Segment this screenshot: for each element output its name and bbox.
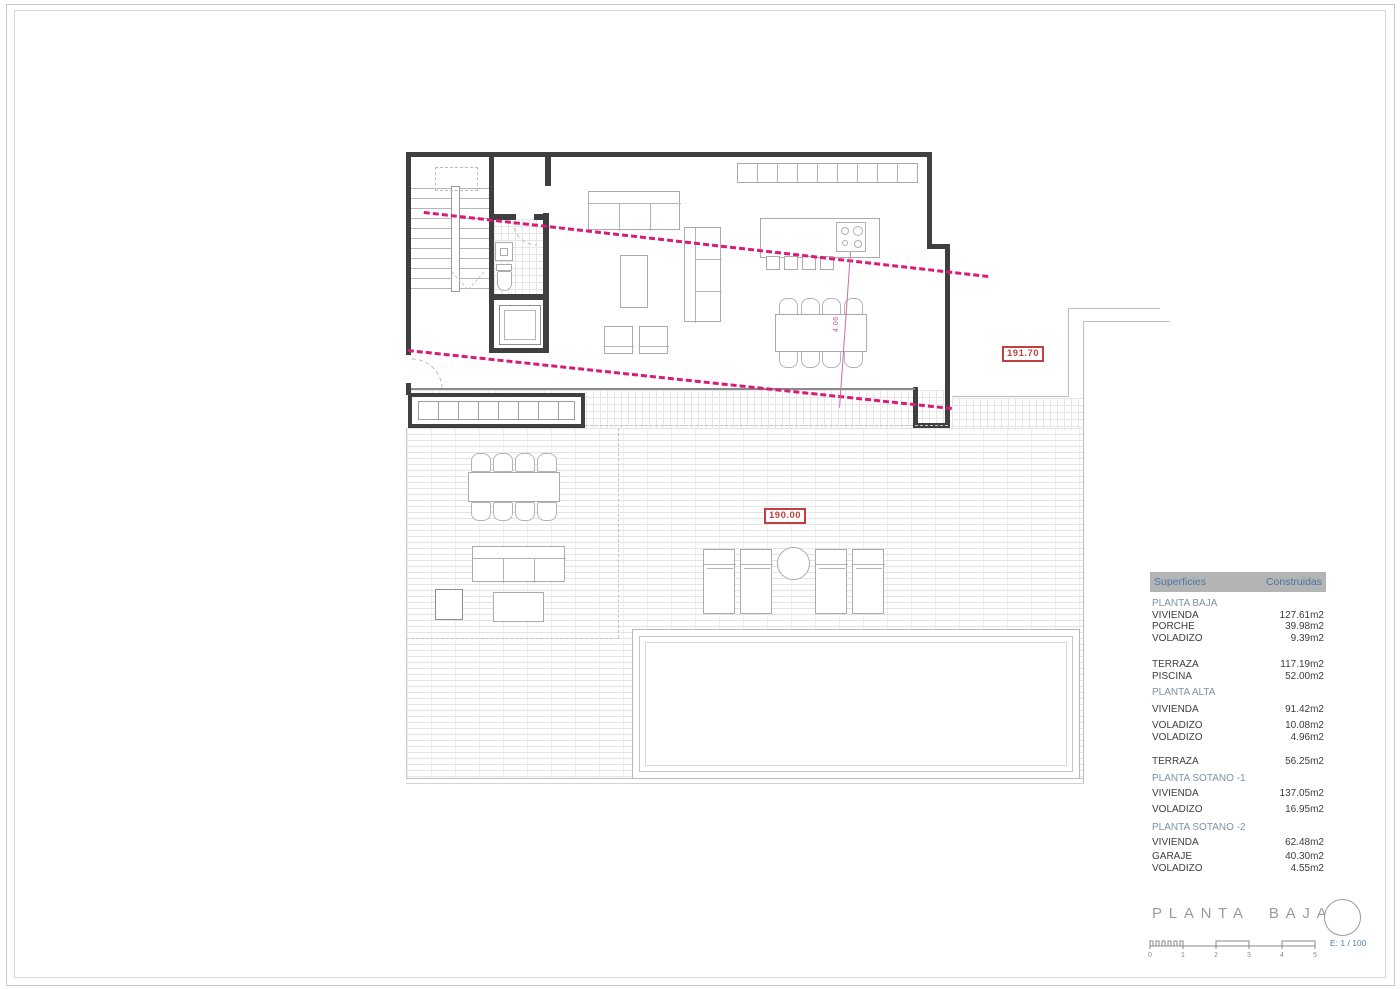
terrace-right-edge (1083, 321, 1084, 783)
voladizo-dashed-line (585, 425, 948, 426)
boundary-step-line (1083, 321, 1170, 322)
surfaces-table: Superficies Construidas PLANTA BAJA VIVI… (1150, 572, 1326, 874)
svg-text:2: 2 (1214, 952, 1218, 959)
table-row: PISCINA52.00m2 (1150, 671, 1326, 683)
terrace-top-edge (952, 396, 1069, 397)
sheet-title: PLANTA BAJA (1152, 905, 1324, 922)
surfaces-header-col2: Construidas (1266, 572, 1322, 592)
voladizo-dashed-line (618, 428, 619, 638)
terrace-upper-right-tiles (952, 398, 1083, 430)
outdoor-chair (471, 453, 491, 472)
outdoor-coffee-table (493, 592, 544, 622)
outdoor-chair (537, 502, 557, 521)
svg-text:0: 0 (1148, 952, 1152, 959)
boundary-step-line (1068, 308, 1069, 396)
drawing-sheet: 4.06 191.70 190.00 Superficies Construid… (0, 0, 1400, 989)
outdoor-chair (515, 502, 535, 521)
table-row: GARAJE40.30m2 (1150, 851, 1326, 863)
pool-water-edge (645, 642, 1067, 766)
outdoor-chair (471, 502, 491, 521)
scale-note: E: 1 / 100 (1330, 938, 1366, 948)
graphic-scale-bar: 0 1 2 3 4 5 (1138, 930, 1338, 960)
table-row: VIVIENDA62.48m2 (1150, 837, 1326, 849)
pool (632, 629, 1080, 779)
table-row: VOLADIZO16.95m2 (1150, 804, 1326, 816)
table-row: TERRAZA56.25m2 (1150, 756, 1326, 768)
table-section: PLANTA SOTANO -2 (1150, 822, 1326, 834)
outdoor-round-table (777, 547, 810, 580)
table-row: VOLADIZO4.55m2 (1150, 863, 1326, 875)
table-row: PORCHE39.98m2 (1150, 621, 1326, 633)
table-row: VOLADIZO9.39m2 (1150, 633, 1326, 645)
table-row: VIVIENDA91.42m2 (1150, 704, 1326, 716)
outdoor-dining-table (468, 472, 560, 502)
svg-text:3: 3 (1247, 952, 1251, 959)
svg-text:5: 5 (1313, 952, 1317, 959)
sun-lounger (740, 549, 772, 614)
terrace-bottom-edge-2 (406, 783, 1084, 784)
svg-text:4: 4 (1280, 952, 1284, 959)
outdoor-chair (537, 453, 557, 472)
sun-lounger (703, 549, 735, 614)
surfaces-table-header: Superficies Construidas (1150, 572, 1326, 592)
elevation-marker-lower: 190.00 (764, 508, 806, 524)
elevation-marker-upper: 191.70 (1002, 346, 1044, 362)
sun-lounger (852, 549, 884, 614)
table-row: VIVIENDA137.05m2 (1150, 788, 1326, 800)
outdoor-chair (493, 502, 513, 521)
surfaces-header-col1: Superficies (1154, 572, 1206, 592)
table-row: VOLADIZO10.08m2 (1150, 720, 1326, 732)
dimension-label: 4.06 (833, 316, 840, 332)
outdoor-chair (515, 453, 535, 472)
table-row: TERRAZA117.19m2 (1150, 659, 1326, 671)
table-row: VOLADIZO4.96m2 (1150, 732, 1326, 744)
voladizo-dashed-line (406, 638, 618, 639)
sun-lounger (815, 549, 847, 614)
table-section: PLANTA SOTANO -1 (1150, 773, 1326, 785)
outdoor-chair (493, 453, 513, 472)
svg-text:1: 1 (1181, 952, 1185, 959)
boundary-step-line (1068, 308, 1160, 309)
outdoor-side-table (435, 589, 463, 620)
table-section: PLANTA ALTA (1150, 687, 1326, 699)
door-swing-arcs (406, 152, 966, 432)
table-section: PLANTA BAJA (1150, 598, 1326, 610)
table-row: VIVIENDA127.61m2 (1150, 610, 1326, 622)
outdoor-sofa (472, 546, 565, 582)
